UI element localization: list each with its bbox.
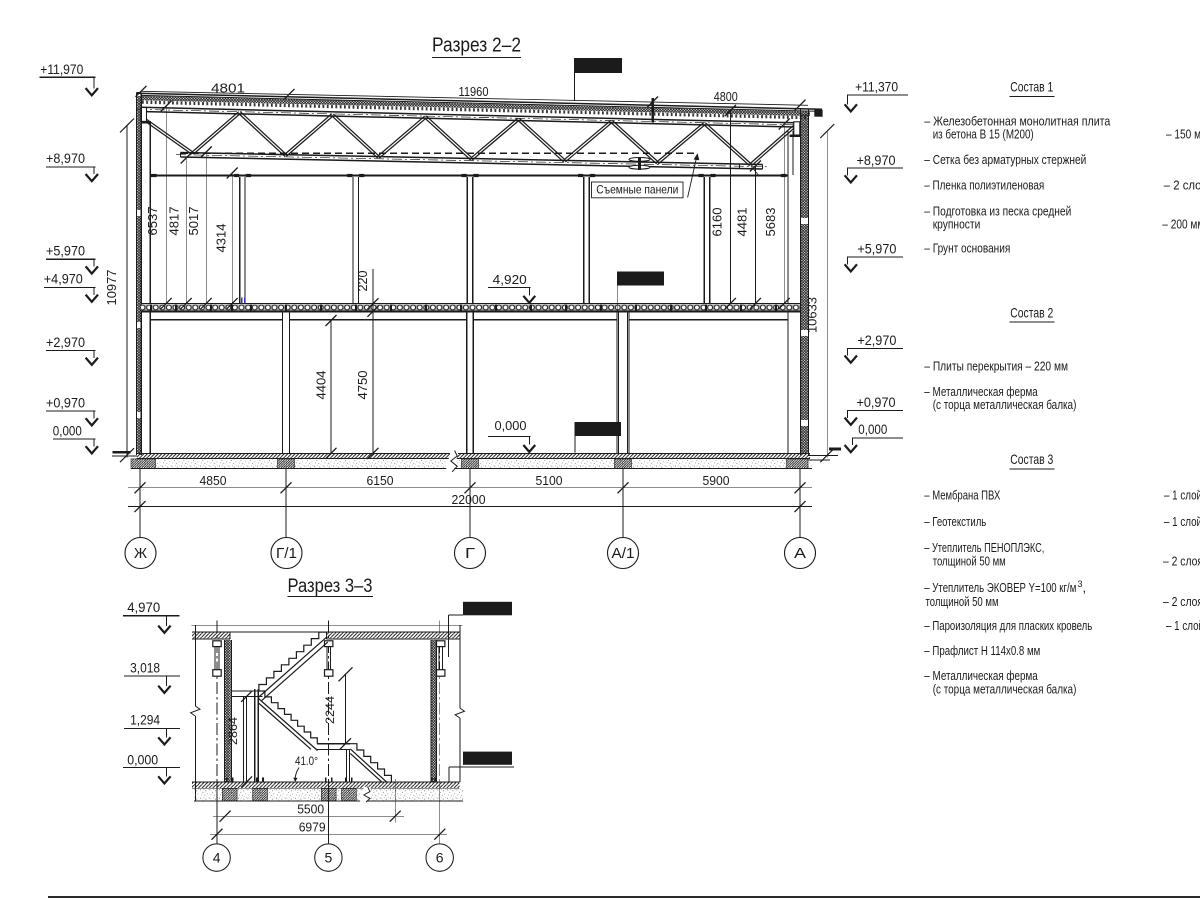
- svg-text:Г/1: Г/1: [276, 546, 297, 562]
- svg-text:6150: 6150: [367, 474, 394, 488]
- svg-text:– 1 слой: – 1 слой: [1164, 514, 1200, 529]
- svg-text:Состав 2: Состав 2: [1010, 305, 1053, 320]
- svg-text:– Геотекстиль: – Геотекстиль: [924, 514, 986, 529]
- svg-text:– 1 слой: – 1 слой: [1164, 488, 1200, 503]
- svg-text:4850: 4850: [200, 474, 227, 488]
- svg-text:4481: 4481: [735, 207, 749, 236]
- svg-text:4750: 4750: [356, 370, 370, 399]
- svg-text:из бетона В 15 (М200): из бетона В 15 (М200): [933, 126, 1034, 141]
- svg-text:Состав 1: Состав 1: [1010, 80, 1053, 95]
- svg-text:– Утеплитель ЭКОВЕР Y=100 кг/м: – Утеплитель ЭКОВЕР Y=100 кг/м: [924, 580, 1076, 595]
- svg-text:– Пароизоляция для пласких кро: – Пароизоляция для пласких кровель: [924, 618, 1092, 633]
- svg-text:+2,970: +2,970: [46, 335, 85, 350]
- svg-text:+8,970: +8,970: [46, 151, 85, 166]
- svg-text:6160: 6160: [710, 207, 724, 236]
- svg-text:Разрез 2–2: Разрез 2–2: [432, 35, 521, 57]
- svg-text:1,294: 1,294: [130, 713, 160, 728]
- svg-text:5: 5: [325, 849, 333, 865]
- svg-text:10633: 10633: [806, 297, 820, 333]
- svg-text:5683: 5683: [764, 207, 778, 236]
- svg-text:2864: 2864: [226, 717, 240, 745]
- svg-text:+2,970: +2,970: [857, 333, 896, 348]
- svg-text:5017: 5017: [187, 206, 201, 235]
- svg-text:– 2 слоя: – 2 слоя: [1163, 594, 1200, 609]
- svg-text:,: ,: [1083, 580, 1087, 595]
- svg-text:0,000: 0,000: [495, 418, 527, 433]
- svg-text:4800: 4800: [714, 90, 738, 104]
- svg-text:41.0°: 41.0°: [295, 754, 318, 768]
- svg-text:Состав 3: Состав 3: [1010, 452, 1053, 467]
- svg-text:4817: 4817: [168, 206, 182, 235]
- svg-text:толщиной 50 мм: толщиной 50 мм: [933, 554, 1006, 569]
- svg-text:4801: 4801: [211, 82, 245, 96]
- svg-text:толщиной 50 мм: толщиной 50 мм: [926, 594, 999, 609]
- svg-text:+11,970: +11,970: [40, 62, 83, 77]
- svg-text:6537: 6537: [146, 206, 160, 235]
- svg-text:2244: 2244: [323, 696, 337, 724]
- svg-text:4,970: 4,970: [127, 600, 160, 615]
- svg-text:– 1 слой: – 1 слой: [1166, 618, 1200, 633]
- svg-text:(с торца металлическая балка): (с торца металлическая балка): [933, 397, 1077, 412]
- svg-text:– 2 слоя: – 2 слоя: [1163, 554, 1200, 569]
- svg-text:А/1: А/1: [612, 546, 635, 562]
- svg-text:Разрез 3–3: Разрез 3–3: [288, 576, 373, 597]
- svg-text:+4,970: +4,970: [44, 272, 83, 287]
- svg-text:– Пленка полиэтиленовая: – Пленка полиэтиленовая: [924, 178, 1044, 193]
- svg-text:3,018: 3,018: [130, 660, 160, 675]
- svg-text:крупности: крупности: [933, 216, 981, 231]
- svg-text:4404: 4404: [315, 370, 329, 399]
- svg-text:+5,970: +5,970: [46, 244, 85, 259]
- svg-text:+5,970: +5,970: [857, 242, 896, 257]
- svg-text:4,920: 4,920: [493, 272, 527, 287]
- svg-text:11960: 11960: [459, 85, 489, 99]
- svg-text:10977: 10977: [105, 269, 119, 305]
- svg-text:(с торца металлическая балка): (с торца металлическая балка): [933, 682, 1077, 697]
- svg-text:4: 4: [213, 849, 221, 865]
- svg-text:– Мембрана ПВХ: – Мембрана ПВХ: [924, 488, 1000, 503]
- svg-text:– 2 слоя: – 2 слоя: [1164, 178, 1200, 193]
- svg-text:– Прафлист Н 114х0.8 мм: – Прафлист Н 114х0.8 мм: [924, 643, 1040, 658]
- svg-text:5900: 5900: [703, 474, 730, 488]
- svg-text:0,000: 0,000: [53, 424, 82, 439]
- svg-text:5500: 5500: [297, 803, 324, 817]
- svg-text:5100: 5100: [536, 474, 563, 488]
- svg-text:6: 6: [436, 849, 444, 865]
- svg-text:– 200 мм: – 200 мм: [1162, 216, 1200, 231]
- svg-text:А: А: [794, 546, 806, 562]
- svg-text:– Сетка без арматурных стержне: – Сетка без арматурных стержней: [924, 152, 1086, 167]
- svg-text:4314: 4314: [214, 223, 228, 252]
- svg-text:Ж: Ж: [134, 546, 148, 562]
- svg-text:+11,370: +11,370: [855, 80, 898, 95]
- svg-text:Г: Г: [465, 546, 475, 562]
- svg-text:0,000: 0,000: [127, 752, 158, 767]
- svg-text:+8,970: +8,970: [857, 153, 896, 168]
- svg-text:0,000: 0,000: [858, 422, 887, 437]
- svg-text:+0,970: +0,970: [46, 396, 85, 411]
- svg-text:+0,970: +0,970: [857, 395, 896, 410]
- svg-text:22000: 22000: [452, 493, 486, 507]
- svg-text:220: 220: [356, 270, 370, 291]
- svg-text:– Плиты перекрытия – 220 мм: – Плиты перекрытия – 220 мм: [924, 358, 1068, 373]
- svg-text:– Грунт основания: – Грунт основания: [924, 241, 1010, 256]
- svg-text:6979: 6979: [299, 821, 326, 835]
- svg-text:– 150 мм: – 150 мм: [1166, 126, 1200, 141]
- svg-text:Съемные панели: Съемные панели: [596, 183, 678, 197]
